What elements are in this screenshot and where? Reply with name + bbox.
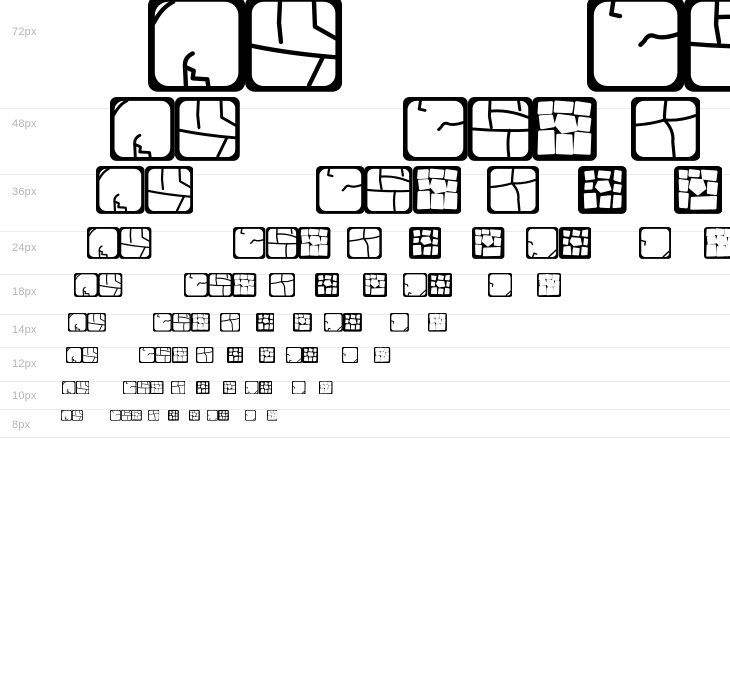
glyph-tile-edge-cracks [403, 273, 427, 297]
glyph-tile-grid-shards [121, 410, 132, 421]
glyph-pebbles-dark-2 [343, 313, 362, 332]
glyph-tile-hook-crack [233, 227, 265, 259]
glyph-pebbles-ring [223, 381, 237, 394]
glyph-pebbles-dark [315, 273, 339, 297]
glyph-pebbles-ring [259, 347, 275, 363]
glyph-tile-five-shards [98, 273, 122, 297]
row-divider [0, 381, 730, 382]
glyph-pebbles-ring [674, 166, 723, 214]
glyph-tile-edge-cracks [324, 313, 343, 332]
glyph-pebbles-dark-2 [218, 410, 229, 421]
glyph-tile-hook-crack [316, 166, 365, 214]
glyph-tile-five-shards [87, 313, 106, 332]
glyph-tile-five-shards [76, 381, 90, 394]
glyph-tile-five-shards [175, 97, 240, 161]
glyph-tile-grid-shards [468, 97, 533, 161]
glyph-tile-grid-shards [172, 313, 191, 332]
glyph-pebbles-light [428, 313, 447, 332]
glyph-tile-hook-crack [110, 410, 121, 421]
size-label: 10px [12, 390, 37, 402]
glyph-tile-sparse-cracks [292, 381, 306, 394]
glyph-tile-five-shards [119, 227, 151, 259]
glyph-pebbles-light [374, 347, 390, 363]
glyph-pebbles-cluster [413, 166, 462, 214]
glyph-pebbles-dark [168, 410, 179, 421]
glyph-tile-hook-crack [403, 97, 468, 161]
row-divider [0, 437, 730, 438]
glyph-tile-grid-shards [155, 347, 171, 363]
glyph-tile-grid-shards [208, 273, 232, 297]
glyph-pebbles-dark-2 [559, 227, 591, 259]
row-divider [0, 347, 730, 348]
glyph-tile-edge-cracks [207, 410, 218, 421]
glyph-tile-hook-crack [184, 273, 208, 297]
glyph-tile-hook-crack [587, 0, 684, 92]
glyph-pebbles-cluster [532, 97, 597, 161]
size-label: 12px [12, 358, 37, 370]
glyph-pebbles-cluster [232, 273, 256, 297]
glyph-tile-branch-crack [62, 381, 76, 394]
glyph-pebbles-light [704, 227, 730, 259]
glyph-tile-sparse-cracks [245, 410, 256, 421]
glyph-tile-edge-cracks [286, 347, 302, 363]
glyph-pebbles-cluster [150, 381, 164, 394]
glyph-tile-branch-crack [148, 0, 245, 92]
glyph-tile-quad-shards [148, 410, 160, 421]
glyph-pebbles-ring [189, 410, 200, 421]
glyph-tile-hook-crack [153, 313, 172, 332]
glyph-pebbles-dark [409, 227, 441, 259]
glyph-pebbles-dark-2 [428, 273, 452, 297]
glyph-tile-branch-crack [110, 97, 175, 161]
glyph-pebbles-dark [256, 313, 275, 332]
glyph-pebbles-cluster [298, 227, 330, 259]
glyph-tile-branch-crack [74, 273, 98, 297]
glyph-tile-five-shards [245, 0, 342, 92]
glyph-tile-quad-shards [220, 313, 240, 332]
size-label: 24px [12, 242, 37, 254]
row-divider [0, 314, 730, 315]
glyph-pebbles-dark-2 [302, 347, 318, 363]
size-label: 48px [12, 118, 37, 130]
glyph-pebbles-cluster [172, 347, 188, 363]
glyph-pebbles-cluster [131, 410, 142, 421]
size-label: 36px [12, 186, 37, 198]
glyph-pebbles-dark-2 [259, 381, 273, 394]
glyph-pebbles-ring [293, 313, 312, 332]
glyph-tile-quad-shards [487, 166, 539, 214]
glyph-tile-grid-shards [266, 227, 298, 259]
glyph-tile-five-shards [72, 410, 83, 421]
glyph-tile-grid-shards [684, 0, 730, 92]
glyph-pebbles-light [537, 273, 561, 297]
glyph-tile-branch-crack [68, 313, 87, 332]
glyph-tile-quad-shards [347, 227, 382, 259]
glyph-pebbles-ring [363, 273, 387, 297]
glyph-pebbles-light [267, 410, 278, 421]
glyph-pebbles-light [319, 381, 333, 394]
glyph-tile-branch-crack [87, 227, 119, 259]
glyph-tile-hook-crack [139, 347, 155, 363]
glyph-tile-quad-shards [196, 347, 213, 363]
size-label: 8px [12, 419, 30, 431]
glyph-tile-edge-cracks [245, 381, 259, 394]
glyph-tile-branch-crack [66, 347, 82, 363]
glyph-tile-quad-shards [269, 273, 295, 297]
glyph-tile-sparse-cracks [342, 347, 358, 363]
glyph-tile-hook-crack [123, 381, 137, 394]
glyph-tile-branch-crack [96, 166, 145, 214]
glyph-tile-five-shards [82, 347, 98, 363]
glyph-tile-sparse-cracks [488, 273, 512, 297]
glyph-tile-grid-shards [364, 166, 413, 214]
size-label: 18px [12, 286, 37, 298]
glyph-pebbles-cluster [191, 313, 210, 332]
size-label: 72px [12, 26, 37, 38]
glyph-tile-edge-cracks [526, 227, 558, 259]
glyph-tile-sparse-cracks [390, 313, 409, 332]
glyph-pebbles-ring [472, 227, 504, 259]
font-size-waterfall: 72px48px36px24px18px14px12px10px8px [0, 0, 730, 700]
glyph-tile-branch-crack [61, 410, 72, 421]
glyph-tile-sparse-cracks [639, 227, 671, 259]
glyph-pebbles-dark [578, 166, 627, 214]
glyph-tile-five-shards [145, 166, 194, 214]
glyph-tile-quad-shards [171, 381, 186, 394]
glyph-pebbles-dark [227, 347, 243, 363]
size-label: 14px [12, 324, 37, 336]
glyph-pebbles-dark [196, 381, 210, 394]
glyph-tile-grid-shards [137, 381, 151, 394]
glyph-tile-quad-shards [631, 97, 701, 161]
